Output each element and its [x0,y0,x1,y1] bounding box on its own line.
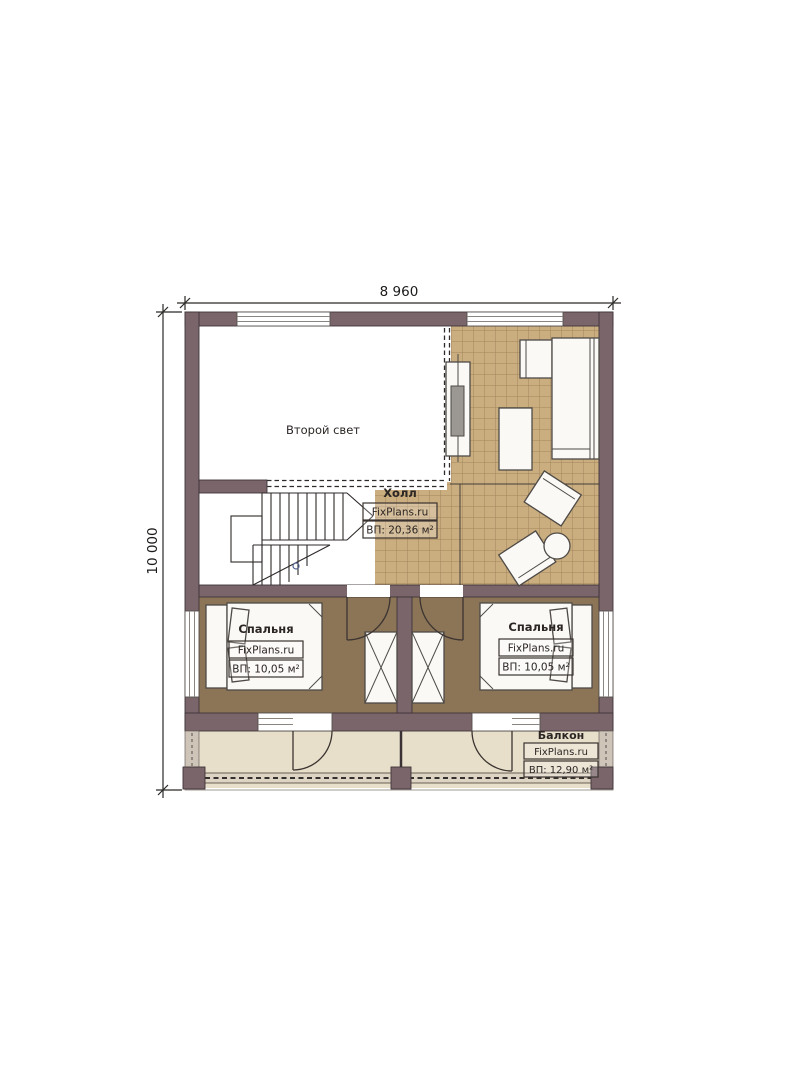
wardrobe-left [365,632,397,703]
wall-hall-bedrooms [199,585,599,597]
sofa-body [552,338,599,459]
wall-stair-stub [199,480,267,493]
balcony-brand: FixPlans.ru [534,747,588,758]
bedroom-right-area: ВП: 10,05 м² [502,662,570,674]
hall-area: ВП: 20,36 м² [366,525,434,537]
window-bedroom-right [599,611,613,697]
bedroom-right-brand: FixPlans.ru [508,643,565,655]
bed-left-headboard [206,605,227,688]
bedroom-right-label-block: Спальня FixPlans.ru ВП: 10,05 м² [499,620,573,675]
bedroom-left-name: Спальня [238,622,293,636]
bedroom-right-name: Спальня [508,620,563,634]
coffee-table [499,408,532,470]
window-top-left [237,312,330,326]
bedroom-left-label-block: Спальня FixPlans.ru ВП: 10,05 м² [229,622,303,677]
bed-right-headboard [572,605,592,688]
dimension-top-label: 8 960 [380,284,419,300]
dimension-left-label: 10 000 [145,527,161,574]
wall-bedroom-divider [397,597,412,713]
floor-plan-svg: Второй свет Холл FixPlans.ru ВП: 20,36 м… [0,0,792,1080]
window-bedroom-left [185,611,199,697]
wardrobe-right [412,632,444,703]
bedroom-left-brand: FixPlans.ru [238,645,295,657]
hall-brand: FixPlans.ru [372,507,429,519]
second-light-label: Второй свет [286,423,360,437]
balcony-post-center [391,767,411,789]
stair-area-floor [199,483,375,585]
side-table [544,533,570,559]
balcony-post-left [183,767,205,789]
bedroom-left-area: ВП: 10,05 м² [232,664,300,676]
dimension-top: 8 960 [177,284,621,310]
hall-name: Холл [383,486,417,500]
sofa-chaise [520,340,552,378]
balcony-name: Балкон [538,729,585,742]
balcony-area: ВП: 12,90 м² [529,765,593,776]
second-light-void [199,326,447,483]
window-top-right [467,312,563,326]
floor-plan-canvas: Второй свет Холл FixPlans.ru ВП: 20,36 м… [0,0,792,1080]
tv-unit [446,354,470,462]
dimension-left: 10 000 [145,304,182,798]
